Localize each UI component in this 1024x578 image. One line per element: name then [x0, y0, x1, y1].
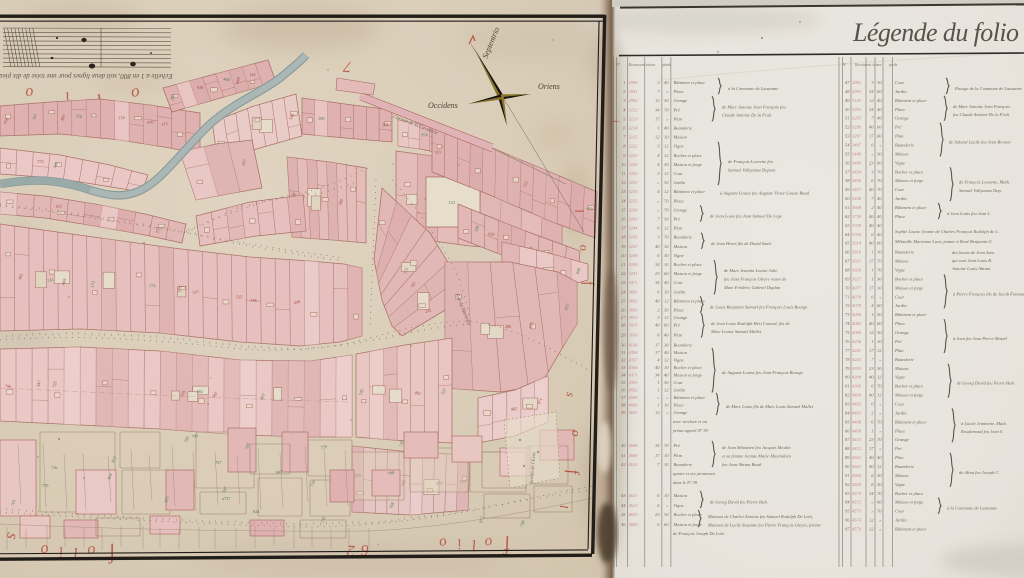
- svg-text:4562: 4562: [852, 455, 862, 460]
- svg-text:36: 36: [621, 388, 626, 393]
- svg-text:de Salomé Lucile feu Jean Bren: de Salomé Lucile feu Jean Brenon: [949, 140, 1011, 145]
- svg-text:4599: 4599: [629, 395, 639, 400]
- svg-text:76: 76: [845, 339, 850, 344]
- svg-text:4241: 4241: [852, 348, 861, 353]
- svg-text:46: 46: [621, 522, 626, 527]
- svg-text:96: 96: [845, 518, 850, 523]
- svg-text:40: 40: [869, 321, 874, 326]
- svg-text:30: 30: [664, 162, 669, 167]
- svg-text:757: 757: [215, 460, 222, 465]
- svg-text:Plan: Plan: [894, 348, 904, 353]
- svg-text:12: 12: [869, 330, 874, 335]
- svg-text:30: 30: [664, 308, 669, 313]
- svg-text:feu Jean Abram Baud: feu Jean Abram Baud: [722, 462, 762, 467]
- svg-text:2991: 2991: [629, 89, 638, 94]
- svg-text:80: 80: [845, 375, 850, 380]
- svg-text:»: »: [879, 527, 881, 532]
- svg-text:3915: 3915: [629, 323, 639, 328]
- svg-text:Place: Place: [894, 321, 905, 326]
- svg-text:o: o: [25, 84, 34, 102]
- svg-text:70: 70: [877, 268, 882, 273]
- svg-text:200: 200: [318, 116, 325, 121]
- svg-text:Samuel Vallyamoz Dupont: Samuel Vallyamoz Dupont: [728, 167, 776, 172]
- svg-text:30: 30: [877, 312, 882, 317]
- svg-text:3243: 3243: [629, 217, 639, 222]
- svg-text:Grange: Grange: [674, 98, 688, 103]
- svg-text:22: 22: [621, 271, 626, 276]
- svg-text:4409: 4409: [852, 428, 862, 433]
- svg-text:2992: 2992: [852, 80, 862, 85]
- svg-text:Maison et forge: Maison et forge: [894, 178, 923, 183]
- svg-text:48: 48: [845, 89, 850, 94]
- svg-text:Pré: Pré: [673, 443, 682, 448]
- svg-text:et sa femme Jeanne Marie Maxim: et sa femme Jeanne Marie Maximilien: [722, 453, 792, 458]
- svg-text:4608: 4608: [629, 443, 639, 448]
- svg-text:60: 60: [877, 321, 882, 326]
- svg-text:40: 40: [869, 125, 874, 130]
- svg-text:34: 34: [655, 443, 660, 448]
- svg-text:67: 67: [845, 259, 850, 264]
- svg-text:3247: 3247: [629, 244, 639, 249]
- svg-text:34: 34: [655, 280, 660, 285]
- svg-text:Samuel Vallyamoz Dup.: Samuel Vallyamoz Dup.: [959, 188, 1002, 193]
- svg-text:30: 30: [877, 366, 882, 371]
- svg-text:60: 60: [664, 271, 669, 276]
- svg-text:4393: 4393: [852, 366, 862, 371]
- svg-text:12: 12: [655, 410, 660, 415]
- svg-text:3236: 3236: [629, 207, 639, 212]
- svg-text:23: 23: [869, 366, 874, 371]
- svg-text:82: 82: [845, 393, 850, 398]
- svg-text:Nº: Nº: [842, 62, 848, 67]
- svg-text:83: 83: [845, 402, 850, 407]
- svg-text:12: 12: [664, 144, 669, 149]
- svg-text:40: 40: [664, 333, 669, 338]
- svg-text:12: 12: [877, 348, 882, 353]
- svg-text:75: 75: [845, 330, 850, 335]
- svg-text:Mélanille Marianne Lucie jeann: Mélanille Marianne Lucie jeanne à René B…: [894, 239, 993, 244]
- svg-text:186: 186: [250, 298, 258, 303]
- svg-text:12: 12: [664, 315, 669, 320]
- svg-text:12: 12: [664, 189, 669, 194]
- svg-text:63: 63: [845, 223, 850, 228]
- svg-text:3916: 3916: [629, 333, 639, 338]
- svg-text:4236: 4236: [852, 339, 862, 344]
- svg-text:70: 70: [877, 169, 882, 174]
- svg-text:de François Louvette feu: de François Louvette feu: [728, 159, 774, 164]
- svg-text:à la Commune de Lausanne: à la Commune de Lausanne: [728, 86, 778, 91]
- svg-text:2990: 2990: [629, 80, 639, 85]
- svg-text:Maison: Maison: [673, 135, 688, 140]
- svg-text:70: 70: [877, 178, 882, 183]
- svg-text:3454: 3454: [852, 169, 862, 174]
- svg-text:10: 10: [664, 244, 669, 249]
- svg-text:Jardin: Jardin: [895, 303, 907, 308]
- svg-text:Plan: Plan: [673, 116, 683, 121]
- svg-text:3449: 3449: [852, 160, 862, 165]
- svg-text:de Marc Antoine Jean François: de Marc Antoine Jean François feu: [722, 104, 786, 109]
- svg-text:16: 16: [621, 217, 626, 222]
- svg-text:Grange: Grange: [895, 437, 909, 442]
- svg-text:70: 70: [877, 384, 882, 389]
- svg-text:toises: toises: [646, 62, 656, 67]
- svg-text:Plan: Plan: [673, 453, 683, 458]
- svg-text:de Jean Louis feu Jean Samuel: de Jean Louis feu Jean Samuel De Lege: [710, 213, 782, 218]
- svg-text:4613: 4613: [629, 503, 639, 508]
- svg-text:4079: 4079: [852, 303, 862, 308]
- svg-text:Maison: Maison: [673, 244, 688, 249]
- svg-text:380: 380: [505, 324, 512, 329]
- svg-text:4573: 4573: [852, 509, 862, 514]
- svg-text:30: 30: [664, 98, 669, 103]
- svg-text:10: 10: [664, 462, 669, 467]
- svg-text:de Jean Sébastien feu Jacques: de Jean Sébastien feu Jacques Moulin: [722, 445, 791, 450]
- svg-text:30: 30: [664, 380, 669, 385]
- svg-text:60: 60: [877, 500, 882, 505]
- svg-text:4394: 4394: [852, 375, 862, 380]
- svg-text:60: 60: [877, 241, 882, 246]
- svg-text:de Jean Henri fils de David Sa: de Jean Henri fils de David Saml.: [711, 241, 772, 246]
- svg-text:4077: 4077: [852, 285, 862, 290]
- svg-text:4357: 4357: [629, 358, 639, 363]
- svg-text:40: 40: [621, 443, 626, 448]
- svg-text:Maison et forge: Maison et forge: [894, 393, 923, 398]
- svg-text:40: 40: [664, 280, 669, 285]
- svg-text:pieds: pieds: [888, 62, 898, 67]
- svg-text:à Jean Louis feu Jean L.: à Jean Louis feu Jean L.: [947, 211, 991, 216]
- svg-text:30: 30: [664, 512, 669, 517]
- svg-text:11: 11: [621, 171, 625, 176]
- svg-text:Place: Place: [894, 107, 905, 112]
- svg-text:59: 59: [845, 187, 850, 192]
- svg-text:60: 60: [877, 160, 882, 165]
- svg-text:71: 71: [845, 294, 850, 299]
- svg-text:Cour: Cour: [895, 402, 905, 407]
- svg-text:40: 40: [869, 241, 874, 246]
- svg-text:Cour: Cour: [895, 187, 905, 192]
- svg-text:17: 17: [869, 446, 874, 451]
- svg-text:»: »: [666, 410, 668, 415]
- svg-text:4408: 4408: [852, 419, 862, 424]
- svg-text:51: 51: [845, 116, 850, 121]
- svg-text:Place: Place: [894, 428, 905, 433]
- svg-text:Buanderie: Buanderie: [674, 235, 693, 240]
- svg-text:4564: 4564: [852, 473, 862, 478]
- svg-text:10: 10: [664, 493, 669, 498]
- svg-text:17: 17: [621, 226, 626, 231]
- svg-text:54: 54: [845, 143, 850, 148]
- svg-text:12: 12: [869, 98, 874, 103]
- svg-text:3222: 3222: [629, 144, 639, 149]
- svg-text:Maison: Maison: [673, 493, 688, 498]
- svg-text:à Jean feu Jean Pierre Mastel: à Jean feu Jean Pierre Mastel: [953, 336, 1008, 341]
- svg-text:4400: 4400: [852, 393, 862, 398]
- svg-text:3764: 3764: [852, 232, 862, 237]
- svg-text:Place: Place: [673, 308, 684, 313]
- svg-text:115: 115: [161, 121, 168, 127]
- svg-text:56: 56: [845, 160, 850, 165]
- svg-text:23: 23: [655, 271, 660, 276]
- svg-text:Pré: Pré: [673, 217, 682, 222]
- svg-text:10: 10: [664, 365, 669, 370]
- svg-text:Oriens: Oriens: [538, 82, 560, 91]
- svg-text:2993: 2993: [852, 89, 862, 94]
- svg-text:Vigne: Vigne: [674, 358, 684, 363]
- svg-text:4840: 4840: [629, 522, 639, 527]
- svg-text:44: 44: [621, 503, 626, 508]
- svg-text:»: »: [871, 500, 873, 505]
- svg-text:Antoine Louis Abram: Antoine Louis Abram: [951, 266, 991, 271]
- svg-text:3235: 3235: [629, 198, 639, 203]
- svg-text:35: 35: [621, 380, 626, 385]
- svg-text:4610: 4610: [629, 462, 639, 467]
- svg-text:438: 438: [197, 85, 204, 90]
- svg-text:Maison et forge: Maison et forge: [894, 500, 923, 505]
- svg-text:3913: 3913: [629, 315, 639, 320]
- svg-text:Grange: Grange: [674, 207, 688, 212]
- svg-text:1: 1: [871, 277, 873, 282]
- svg-text:47: 47: [845, 80, 850, 85]
- svg-text:4403: 4403: [852, 410, 862, 415]
- svg-text:feu Jean François Gleyre veuve: feu Jean François Gleyre veuve de: [724, 277, 786, 282]
- svg-text:3215: 3215: [629, 135, 639, 140]
- svg-text:33: 33: [621, 365, 626, 370]
- svg-text:»: »: [657, 395, 659, 400]
- svg-text:4086: 4086: [852, 330, 862, 335]
- svg-text:3244: 3244: [629, 226, 639, 231]
- svg-text:24: 24: [621, 289, 626, 294]
- svg-text:40: 40: [877, 223, 882, 228]
- svg-text:70: 70: [664, 443, 669, 448]
- svg-text:12: 12: [664, 226, 669, 231]
- svg-text:Buanderie: Buanderie: [674, 343, 693, 348]
- svg-text:20: 20: [621, 253, 626, 258]
- svg-text:Bocher et place: Bocher et place: [674, 365, 702, 370]
- svg-text:Bocher et place: Bocher et place: [895, 277, 923, 282]
- svg-text:4611: 4611: [629, 493, 638, 498]
- svg-text:Jardin: Jardin: [895, 518, 907, 523]
- svg-text:81: 81: [845, 384, 850, 389]
- svg-text:12: 12: [664, 358, 669, 363]
- svg-text:77: 77: [845, 348, 850, 353]
- svg-text:4579: 4579: [852, 527, 862, 532]
- svg-text:10: 10: [664, 289, 669, 294]
- svg-text:49: 49: [845, 98, 850, 103]
- svg-text:préau appelé Nº 39: préau appelé Nº 39: [672, 428, 709, 433]
- svg-text:17: 17: [655, 350, 660, 355]
- svg-text:Vigne: Vigne: [895, 482, 905, 487]
- svg-text:30: 30: [664, 253, 669, 258]
- svg-text:12: 12: [877, 393, 882, 398]
- svg-text:toises: toises: [873, 62, 883, 67]
- svg-text:4609: 4609: [629, 453, 639, 458]
- svg-text:28: 28: [621, 323, 626, 328]
- svg-text:30: 30: [664, 217, 669, 222]
- svg-text:40: 40: [877, 196, 882, 201]
- svg-text:de Georg David feu Pierre Hub.: de Georg David feu Pierre Hub.: [710, 500, 768, 505]
- svg-text:Bocher et place: Bocher et place: [895, 384, 923, 389]
- svg-text:qui sont Jean Louis R.: qui sont Jean Louis R.: [952, 258, 992, 263]
- svg-text:4085: 4085: [852, 321, 862, 326]
- svg-text:34: 34: [655, 373, 660, 378]
- svg-text:Buanderie: Buanderie: [674, 126, 693, 131]
- svg-text:Buanderie: Buanderie: [895, 143, 914, 148]
- svg-text:25: 25: [621, 298, 626, 303]
- svg-text:34: 34: [655, 262, 660, 267]
- svg-text:»: »: [879, 294, 881, 299]
- svg-text:4136: 4136: [629, 343, 639, 348]
- svg-text:42: 42: [621, 462, 626, 467]
- svg-text:Buanderie: Buanderie: [895, 357, 914, 362]
- svg-text:Jardin: Jardin: [674, 180, 686, 185]
- svg-text:»: »: [666, 503, 668, 508]
- svg-text:52: 52: [845, 125, 850, 130]
- svg-text:1: 1: [871, 312, 873, 317]
- svg-text:Place: Place: [673, 403, 684, 408]
- svg-text:79: 79: [845, 366, 850, 371]
- svg-text:17: 17: [869, 348, 874, 353]
- svg-text:4600: 4600: [629, 403, 639, 408]
- svg-text:3293: 3293: [852, 107, 862, 112]
- svg-text:40: 40: [655, 323, 660, 328]
- svg-text:12: 12: [869, 527, 874, 532]
- svg-text:70: 70: [877, 509, 882, 514]
- svg-text:60: 60: [845, 196, 850, 201]
- svg-text:12: 12: [869, 518, 874, 523]
- svg-text:40: 40: [664, 373, 669, 378]
- svg-text:de Auguste Louise feu Jean Fra: de Auguste Louise feu Jean François Bour…: [722, 370, 803, 375]
- svg-text:3230: 3230: [629, 162, 639, 167]
- svg-text:30: 30: [664, 343, 669, 348]
- svg-text:95: 95: [845, 509, 850, 514]
- svg-text:Vigne: Vigne: [895, 375, 905, 380]
- svg-text:4371: 4371: [629, 373, 638, 378]
- svg-text:70: 70: [664, 207, 669, 212]
- svg-text:17: 17: [869, 134, 874, 139]
- svg-text:131: 131: [449, 200, 456, 205]
- svg-text:70: 70: [664, 235, 669, 240]
- svg-text:29: 29: [621, 333, 626, 338]
- svg-text:91: 91: [845, 473, 850, 478]
- svg-text:Maison: Maison: [894, 473, 909, 478]
- svg-text:30: 30: [877, 277, 882, 282]
- svg-text:1: 1: [657, 126, 659, 131]
- svg-text:824: 824: [253, 509, 260, 514]
- svg-text:à Pierre François fils de Jaco: à Pierre François fils de Jacob Fontanaz: [953, 291, 1024, 296]
- svg-text:30: 30: [664, 180, 669, 185]
- svg-text:12: 12: [621, 180, 626, 185]
- svg-text:93: 93: [845, 491, 850, 496]
- svg-text:»: »: [879, 410, 881, 415]
- svg-text:quatre et ses promesses: quatre et ses promesses: [673, 471, 716, 476]
- svg-text:14: 14: [621, 198, 626, 203]
- svg-text:40: 40: [869, 455, 874, 460]
- svg-text:3297: 3297: [852, 134, 862, 139]
- svg-text:18: 18: [621, 235, 626, 240]
- svg-text:12: 12: [664, 388, 669, 393]
- svg-text:40: 40: [664, 126, 669, 131]
- svg-text:23: 23: [655, 512, 660, 517]
- svg-text:66: 66: [845, 250, 850, 255]
- svg-text:Jardin: Jardin: [674, 289, 686, 294]
- svg-text:3447: 3447: [852, 143, 862, 148]
- svg-text:Rosalimond feu Jean S.: Rosalimond feu Jean S.: [960, 429, 1003, 434]
- svg-text:pieds: pieds: [662, 62, 672, 67]
- svg-text:Echelle a 1 en 800, soit deux: Echelle a 1 en 800, soit deux lignes pou…: [0, 72, 173, 80]
- svg-text:3248: 3248: [629, 253, 639, 258]
- svg-text:32: 32: [621, 358, 626, 363]
- svg-text:Marc Frédéric Gabriel Duplan: Marc Frédéric Gabriel Duplan: [723, 285, 781, 290]
- svg-text:40: 40: [664, 350, 669, 355]
- svg-text:»: »: [879, 143, 881, 148]
- svg-text:12: 12: [664, 171, 669, 176]
- svg-text:Jardin: Jardin: [895, 410, 907, 415]
- svg-text:Bocher et place: Bocher et place: [674, 512, 702, 517]
- svg-text:10: 10: [664, 135, 669, 140]
- svg-text:1: 1: [657, 403, 659, 408]
- svg-text:3234: 3234: [629, 189, 639, 194]
- svg-text:40: 40: [869, 214, 874, 219]
- svg-text:3608: 3608: [852, 205, 862, 210]
- svg-text:3927: 3927: [852, 277, 862, 282]
- svg-text:58: 58: [845, 178, 850, 183]
- svg-text:40: 40: [655, 244, 660, 249]
- svg-text:30: 30: [877, 473, 882, 478]
- svg-text:Bâtiment et place: Bâtiment et place: [674, 395, 706, 400]
- svg-text:Pré: Pré: [894, 125, 903, 130]
- svg-text:92: 92: [845, 482, 850, 487]
- svg-text:21: 21: [621, 262, 626, 267]
- svg-text:97: 97: [845, 527, 850, 532]
- svg-text:Pacage de la Commune de Lausan: Pacage de la Commune de Lausanne: [954, 86, 1022, 91]
- svg-text:1: 1: [657, 380, 659, 385]
- svg-text:4402: 4402: [852, 402, 862, 407]
- svg-text:68: 68: [845, 268, 850, 273]
- svg-text:Pré: Pré: [673, 107, 682, 112]
- svg-text:»: »: [657, 198, 659, 203]
- svg-text:23: 23: [869, 437, 874, 442]
- svg-text:652: 652: [56, 203, 63, 208]
- svg-text:Maison et forge: Maison et forge: [673, 522, 702, 527]
- svg-text:Marc Louise Samuel Mallet.: Marc Louise Samuel Mallet.: [710, 329, 762, 334]
- svg-text:de Louis Benjamin Samuel feu F: de Louis Benjamin Samuel feu François Lo…: [710, 304, 807, 309]
- svg-text:4412: 4412: [852, 446, 862, 451]
- svg-text:3692: 3692: [629, 298, 639, 303]
- svg-text:449: 449: [293, 299, 300, 305]
- svg-text:94: 94: [845, 500, 850, 505]
- svg-text:27: 27: [621, 315, 626, 320]
- svg-text:»: »: [879, 518, 881, 523]
- svg-text:39: 39: [621, 410, 626, 415]
- svg-text:60: 60: [877, 89, 882, 94]
- svg-text:Bocher et place: Bocher et place: [674, 262, 702, 267]
- svg-text:60: 60: [664, 323, 669, 328]
- svg-text:»: »: [871, 151, 873, 156]
- svg-text:3759: 3759: [852, 223, 862, 228]
- svg-text:40: 40: [655, 298, 660, 303]
- svg-text:40: 40: [877, 214, 882, 219]
- svg-text:à la Commune de Lausanne: à la Commune de Lausanne: [947, 506, 997, 511]
- svg-text:70: 70: [877, 491, 882, 496]
- svg-text:3214: 3214: [629, 126, 639, 131]
- svg-text:o: o: [569, 430, 584, 437]
- svg-text:3457: 3457: [852, 187, 862, 192]
- svg-text:628: 628: [488, 231, 495, 236]
- svg-text:70: 70: [877, 437, 882, 442]
- svg-text:Cour: Cour: [895, 509, 905, 514]
- svg-text:10: 10: [664, 262, 669, 267]
- svg-text:69: 69: [845, 277, 850, 282]
